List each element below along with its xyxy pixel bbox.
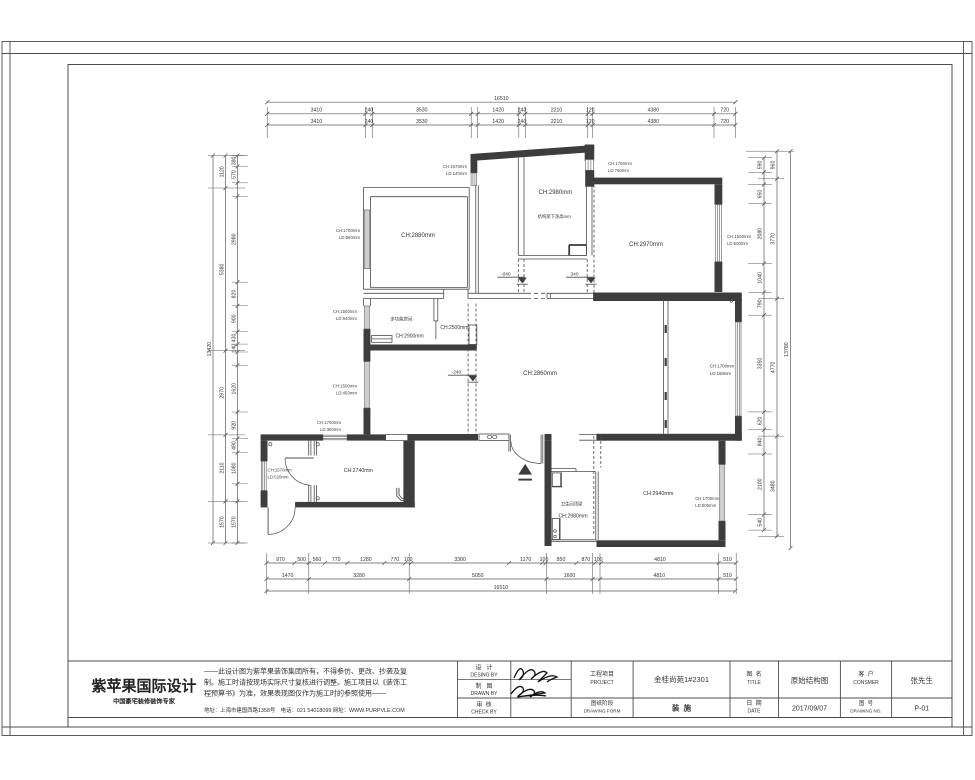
- svg-text:2210: 2210: [551, 119, 563, 125]
- svg-text:DRAWN BY: DRAWN BY: [471, 691, 498, 697]
- svg-text:4380: 4380: [648, 119, 660, 125]
- svg-text:120: 120: [586, 119, 595, 125]
- svg-text:CH:1700mm: CH:1700mm: [317, 420, 342, 425]
- svg-text:1080: 1080: [232, 462, 238, 474]
- svg-text:1420: 1420: [492, 119, 504, 125]
- svg-text:金桂尚苑1#2301: 金桂尚苑1#2301: [654, 674, 709, 684]
- svg-text:CH:2740mm: CH:2740mm: [344, 468, 373, 474]
- svg-text:5380: 5380: [220, 264, 226, 276]
- svg-text:CONSMER: CONSMER: [853, 680, 879, 686]
- svg-text:16510: 16510: [494, 96, 509, 102]
- svg-text:3410: 3410: [311, 108, 323, 114]
- svg-text:790: 790: [758, 299, 764, 308]
- svg-text:DESING BY: DESING BY: [470, 673, 498, 679]
- svg-text:2970: 2970: [220, 387, 226, 399]
- svg-text:CH:1700mm: CH:1700mm: [695, 496, 720, 501]
- svg-text:2980: 2980: [232, 233, 238, 245]
- svg-text:1120: 1120: [220, 166, 226, 177]
- svg-text:图纸阶段: 图纸阶段: [591, 699, 614, 707]
- svg-text:2017/09/07: 2017/09/07: [792, 706, 827, 713]
- svg-text:540: 540: [758, 518, 764, 527]
- svg-text:图 名: 图 名: [746, 670, 761, 678]
- svg-text:LD:520mm: LD:520mm: [268, 475, 289, 480]
- svg-text:程预算书》为准，效果表现图仅作为施工时的参照使用——: 程预算书》为准，效果表现图仅作为施工时的参照使用——: [204, 689, 386, 698]
- svg-text:960: 960: [771, 161, 777, 170]
- svg-text:DRAWING FORM: DRAWING FORM: [584, 709, 621, 714]
- svg-text:装 施: 装 施: [671, 703, 692, 713]
- svg-text:120: 120: [586, 108, 595, 114]
- svg-text:LD:450mm: LD:450mm: [336, 391, 357, 396]
- svg-text:840: 840: [758, 437, 764, 446]
- svg-text:日 期: 日 期: [746, 699, 761, 707]
- svg-text:850: 850: [557, 557, 566, 563]
- svg-text:审 核: 审 核: [476, 701, 491, 709]
- svg-text:LD:500mm: LD:500mm: [727, 241, 748, 246]
- svg-text:3480: 3480: [771, 480, 777, 492]
- svg-text:13780: 13780: [784, 342, 790, 357]
- svg-text:820: 820: [232, 290, 238, 299]
- svg-text:LD:760mm: LD:760mm: [608, 168, 629, 173]
- svg-text:LD:350mm: LD:350mm: [320, 427, 341, 432]
- svg-text:770: 770: [390, 557, 399, 563]
- svg-text:客 户: 客 户: [858, 670, 873, 678]
- svg-text:CH:2980mm: CH:2980mm: [558, 514, 587, 520]
- svg-text:CH:1500mm: CH:1500mm: [333, 384, 358, 389]
- svg-text:2080: 2080: [758, 228, 764, 240]
- svg-text:LD:160mm: LD:160mm: [710, 371, 731, 376]
- svg-text:380: 380: [232, 156, 238, 165]
- svg-text:2210: 2210: [551, 108, 563, 114]
- svg-text:LD:560mm: LD:560mm: [339, 235, 360, 240]
- svg-text:地址：上海市建国西路1358号 电话：021 5401809: 地址：上海市建国西路1358号 电话：021 54018099 网址：WWW.P…: [204, 706, 405, 714]
- svg-text:3770: 3770: [771, 233, 777, 245]
- svg-text:510: 510: [723, 557, 732, 563]
- svg-text:620: 620: [758, 416, 764, 425]
- svg-text:CH:1700mm: CH:1700mm: [336, 228, 361, 233]
- svg-text:770: 770: [332, 557, 341, 563]
- svg-text:5050: 5050: [472, 573, 484, 579]
- svg-text:570: 570: [232, 170, 238, 179]
- svg-text:3410: 3410: [311, 119, 323, 125]
- svg-text:原始结构图: 原始结构图: [791, 675, 829, 685]
- svg-text:1280: 1280: [360, 557, 372, 563]
- svg-text:140: 140: [232, 344, 238, 353]
- svg-text:CH:2880mm: CH:2880mm: [401, 233, 435, 239]
- svg-text:3300: 3300: [454, 557, 466, 563]
- svg-text:CH:1760mm: CH:1760mm: [608, 161, 633, 166]
- svg-text:工程项目: 工程项目: [590, 670, 614, 678]
- svg-text:CHECK BY: CHECK BY: [471, 710, 497, 716]
- svg-text:720: 720: [720, 108, 729, 114]
- svg-text:510: 510: [723, 573, 732, 579]
- svg-text:CH:1570mm: CH:1570mm: [268, 468, 293, 473]
- svg-text:制。施工时请按现场实际尺寸复核进行调整。施工项目以《装饰工: 制。施工时请按现场实际尺寸复核进行调整。施工项目以《装饰工: [204, 678, 407, 687]
- svg-text:100: 100: [540, 557, 549, 563]
- svg-text:制 图: 制 图: [475, 682, 492, 690]
- svg-text:340: 340: [570, 272, 578, 278]
- svg-text:LD:500mm: LD:500mm: [695, 503, 716, 508]
- svg-text:1620: 1620: [232, 383, 238, 395]
- svg-text:多功能房间: 多功能房间: [390, 316, 412, 323]
- svg-text:920: 920: [232, 421, 238, 430]
- svg-text:CH:2940mm: CH:2940mm: [643, 491, 674, 497]
- svg-text:3280: 3280: [353, 573, 365, 579]
- svg-text:-040: -040: [501, 272, 511, 278]
- svg-text:LD:940mm: LD:940mm: [336, 316, 357, 321]
- svg-text:CH:1500mm: CH:1500mm: [727, 234, 752, 239]
- svg-text:卫生间顶梁: 卫生间顶梁: [561, 501, 583, 508]
- svg-text:CH:2500mm: CH:2500mm: [440, 325, 468, 331]
- svg-text:1470: 1470: [282, 573, 294, 579]
- svg-text:CH:2980mm: CH:2980mm: [539, 190, 573, 196]
- svg-text:紫苹果国际设计: 紫苹果国际设计: [91, 677, 196, 695]
- svg-text:100: 100: [404, 557, 413, 563]
- svg-text:图 号: 图 号: [859, 699, 874, 707]
- svg-text:720: 720: [720, 119, 729, 125]
- svg-text:中国豪宅装修装饰专家: 中国豪宅装修装饰专家: [113, 698, 176, 706]
- svg-text:870: 870: [581, 557, 590, 563]
- svg-text:DATE: DATE: [748, 709, 762, 715]
- svg-text:4380: 4380: [648, 108, 660, 114]
- svg-text:2110: 2110: [220, 462, 226, 473]
- svg-text:2100: 2100: [758, 478, 764, 490]
- svg-text:DRAWING NO.: DRAWING NO.: [850, 709, 881, 714]
- svg-text:1420: 1420: [492, 108, 504, 114]
- svg-text:CH:1700mm: CH:1700mm: [710, 364, 735, 369]
- svg-text:500: 500: [297, 557, 306, 563]
- svg-text:590: 590: [758, 160, 764, 169]
- svg-text:1600: 1600: [564, 573, 576, 579]
- svg-text:100: 100: [594, 557, 603, 563]
- svg-text:3530: 3530: [416, 108, 428, 114]
- svg-text:13420: 13420: [207, 342, 213, 357]
- svg-text:张先生: 张先生: [911, 675, 934, 685]
- svg-text:3350: 3350: [758, 358, 764, 370]
- svg-text:P-01: P-01: [914, 706, 929, 713]
- svg-text:560: 560: [313, 557, 322, 563]
- svg-text:设 计: 设 计: [475, 664, 492, 672]
- svg-text:LD:140mm: LD:140mm: [446, 171, 467, 176]
- svg-text:1570: 1570: [232, 516, 238, 528]
- svg-text:PROJECT: PROJECT: [590, 680, 613, 686]
- svg-text:CH:1500mm: CH:1500mm: [333, 309, 358, 314]
- svg-text:CH:2970mm: CH:2970mm: [629, 242, 663, 248]
- svg-text:900: 900: [232, 314, 238, 323]
- svg-text:TITLE: TITLE: [747, 680, 761, 686]
- svg-text:CH:2860mm: CH:2860mm: [523, 371, 557, 377]
- svg-text:4810: 4810: [654, 573, 666, 579]
- svg-text:结构梁下净高mm: 结构梁下净高mm: [538, 213, 571, 220]
- svg-text:650: 650: [758, 190, 764, 199]
- svg-text:3530: 3530: [416, 119, 428, 125]
- svg-text:970: 970: [276, 557, 285, 563]
- svg-text:4770: 4770: [771, 362, 777, 374]
- svg-text:1170: 1170: [520, 557, 531, 563]
- svg-text:430: 430: [232, 333, 238, 342]
- svg-text:1040: 1040: [758, 272, 764, 284]
- svg-text:1570: 1570: [220, 516, 226, 528]
- svg-text:16510: 16510: [494, 585, 509, 591]
- svg-text:——此设计图为紫苹果装饰集团所有，不得参仿、更改、抄袭及复: ——此设计图为紫苹果装饰集团所有，不得参仿、更改、抄袭及复: [204, 667, 407, 676]
- svg-text:CH:2900mm: CH:2900mm: [396, 334, 424, 340]
- svg-text:4810: 4810: [654, 557, 666, 563]
- svg-text:CH:1670mm: CH:1670mm: [443, 164, 468, 169]
- svg-text:-240: -240: [452, 370, 462, 376]
- svg-text:490: 490: [232, 441, 238, 450]
